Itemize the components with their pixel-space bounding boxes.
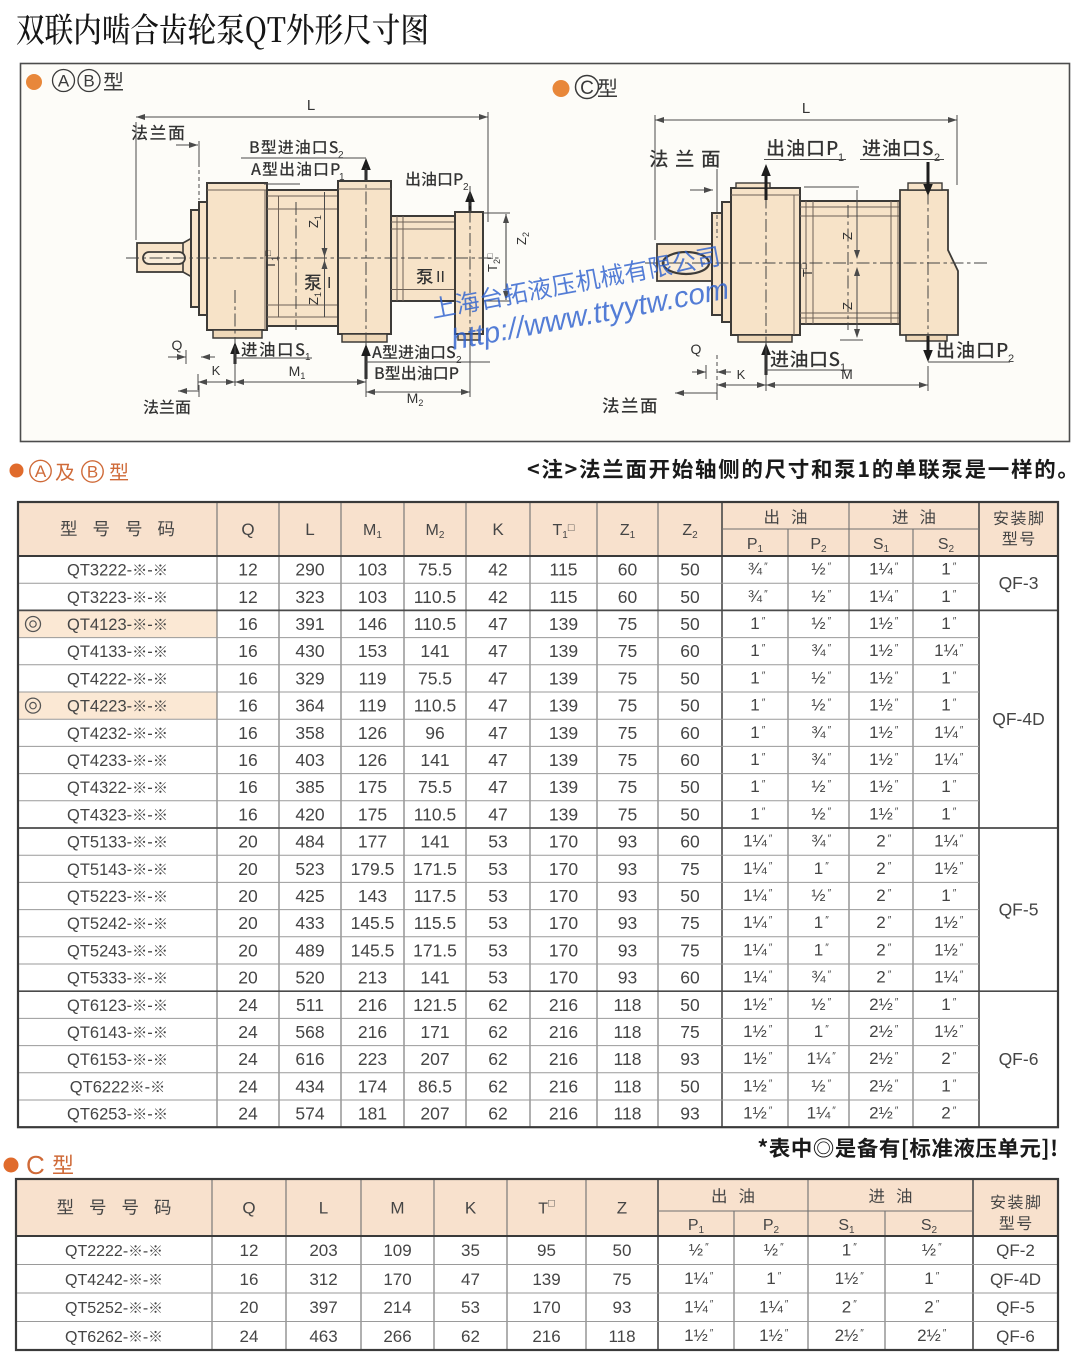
- svg-text:″: ″: [762, 806, 766, 817]
- svg-text:″: ″: [769, 834, 773, 845]
- svg-text:2: 2: [941, 1104, 950, 1123]
- svg-text:-: -: [147, 589, 153, 607]
- svg-text:1: 1: [941, 668, 950, 687]
- svg-text:QT5333-: QT5333-: [67, 970, 132, 988]
- svg-text:425: 425: [295, 886, 324, 906]
- svg-text:115: 115: [550, 560, 578, 580]
- svg-text:216: 216: [549, 1022, 578, 1042]
- svg-text:385: 385: [295, 777, 324, 797]
- svg-text:1¼: 1¼: [934, 641, 958, 660]
- svg-text:1½: 1½: [869, 696, 893, 715]
- svg-text:53: 53: [461, 1298, 480, 1317]
- svg-text:170: 170: [549, 913, 578, 933]
- svg-text:430: 430: [295, 641, 324, 661]
- svg-text:-: -: [147, 1051, 153, 1069]
- svg-text:″: ″: [828, 616, 832, 627]
- svg-text:12: 12: [238, 560, 257, 580]
- svg-text:″: ″: [888, 970, 892, 981]
- svg-text:QT6262-: QT6262-: [65, 1329, 128, 1346]
- svg-text:QF-2: QF-2: [996, 1241, 1035, 1260]
- svg-text:½: ½: [764, 1240, 778, 1259]
- svg-text:1½: 1½: [934, 913, 958, 932]
- svg-text:-: -: [147, 997, 153, 1015]
- svg-text:1: 1: [750, 777, 759, 796]
- svg-text:118: 118: [614, 1049, 642, 1069]
- svg-text:QT2222-: QT2222-: [65, 1243, 128, 1260]
- svg-text:″: ″: [888, 942, 892, 953]
- svg-text:″: ″: [832, 1106, 836, 1117]
- svg-text:″: ″: [953, 1106, 957, 1117]
- svg-text:″: ″: [953, 698, 957, 709]
- svg-text:50: 50: [680, 668, 700, 688]
- svg-text:50: 50: [680, 696, 700, 716]
- svg-text:1: 1: [750, 614, 759, 633]
- svg-text:″: ″: [938, 1242, 942, 1253]
- svg-text:½: ½: [811, 886, 825, 905]
- svg-text:145.5: 145.5: [351, 913, 395, 933]
- svg-text:171: 171: [420, 1022, 449, 1042]
- svg-text:-: -: [147, 834, 153, 852]
- svg-text:A: A: [58, 72, 70, 91]
- svg-text:″: ″: [769, 888, 773, 899]
- svg-text:141: 141: [420, 641, 449, 661]
- svg-text:M: M: [390, 1199, 404, 1218]
- svg-text:2: 2: [463, 182, 469, 193]
- svg-text:24: 24: [238, 1076, 258, 1096]
- svg-text:75: 75: [618, 750, 637, 770]
- svg-text:1½: 1½: [684, 1326, 708, 1345]
- svg-text:16: 16: [238, 750, 257, 770]
- svg-text:″: ″: [895, 779, 899, 790]
- svg-text:2: 2: [842, 1297, 851, 1316]
- svg-text:-: -: [147, 562, 153, 580]
- svg-text:171.5: 171.5: [413, 859, 457, 879]
- svg-text:47: 47: [488, 614, 507, 634]
- svg-text:463: 463: [309, 1327, 337, 1346]
- svg-text:″: ″: [828, 779, 832, 790]
- svg-text:QT5133-: QT5133-: [67, 834, 132, 852]
- svg-text:II: II: [436, 269, 445, 286]
- svg-text:″: ″: [936, 1299, 940, 1310]
- svg-text:-: -: [143, 1243, 148, 1260]
- svg-text:″: ″: [705, 1242, 709, 1253]
- svg-text:QT4242-: QT4242-: [65, 1272, 128, 1289]
- svg-text:M: M: [841, 366, 853, 382]
- svg-text:1½: 1½: [743, 1076, 767, 1095]
- svg-text:75: 75: [680, 940, 699, 960]
- svg-text:″: ″: [785, 1328, 789, 1339]
- svg-text:12: 12: [238, 587, 257, 607]
- svg-text:2: 2: [934, 152, 940, 164]
- svg-text:″: ″: [895, 752, 899, 763]
- svg-text:1½: 1½: [869, 804, 893, 823]
- svg-text:″: ″: [960, 915, 964, 926]
- svg-text:″: ″: [828, 562, 832, 573]
- svg-text:568: 568: [295, 1022, 324, 1042]
- svg-text:391: 391: [295, 614, 324, 634]
- svg-text:216: 216: [549, 1076, 578, 1096]
- svg-text:75: 75: [618, 614, 637, 634]
- svg-text:2: 2: [876, 940, 885, 959]
- svg-text:1¼: 1¼: [743, 832, 767, 851]
- svg-text:2: 2: [876, 913, 885, 932]
- svg-text:16: 16: [238, 777, 257, 797]
- svg-text:1: 1: [842, 1240, 851, 1259]
- svg-text:489: 489: [295, 940, 324, 960]
- svg-text:L: L: [307, 97, 315, 114]
- svg-text:175: 175: [358, 777, 387, 797]
- svg-text:60: 60: [618, 587, 638, 607]
- svg-text:1¼: 1¼: [869, 587, 893, 606]
- svg-text:115: 115: [550, 587, 578, 607]
- svg-text:323: 323: [295, 587, 324, 607]
- svg-text:″: ″: [825, 861, 829, 872]
- svg-text:QT5243-: QT5243-: [67, 942, 132, 960]
- svg-text:″: ″: [762, 698, 766, 709]
- svg-text:16: 16: [240, 1270, 259, 1289]
- svg-text:141: 141: [420, 750, 449, 770]
- svg-text:139: 139: [549, 750, 578, 770]
- svg-text:1¼: 1¼: [743, 913, 767, 932]
- svg-text:-: -: [145, 1078, 151, 1096]
- svg-text:″: ″: [888, 834, 892, 845]
- svg-text:47: 47: [488, 723, 507, 743]
- svg-text:QT5252-: QT5252-: [65, 1300, 128, 1317]
- svg-text:118: 118: [608, 1327, 635, 1346]
- svg-text:207: 207: [420, 1049, 449, 1069]
- svg-text:½: ½: [811, 560, 825, 579]
- svg-text:″: ″: [769, 997, 773, 1008]
- svg-text:″: ″: [832, 1051, 836, 1062]
- svg-text:1: 1: [941, 995, 950, 1014]
- svg-text:93: 93: [618, 859, 637, 879]
- svg-text:53: 53: [488, 940, 507, 960]
- svg-text:″: ″: [853, 1242, 857, 1253]
- svg-text:″: ″: [828, 997, 832, 1008]
- svg-text:QT4323-: QT4323-: [67, 806, 132, 824]
- svg-text:1: 1: [750, 723, 759, 742]
- svg-text:42: 42: [488, 587, 507, 607]
- svg-text:139: 139: [549, 777, 578, 797]
- svg-text:-: -: [147, 1024, 153, 1042]
- svg-text:L: L: [802, 100, 810, 117]
- svg-text:1¼: 1¼: [807, 1104, 831, 1123]
- svg-text:75: 75: [618, 641, 637, 661]
- svg-text:-: -: [143, 1300, 148, 1317]
- svg-text:QT5143-: QT5143-: [67, 861, 132, 879]
- svg-text:″: ″: [828, 806, 832, 817]
- svg-text:60: 60: [680, 641, 700, 661]
- svg-text:½: ½: [811, 1076, 825, 1095]
- svg-text:½: ½: [811, 696, 825, 715]
- svg-text:″: ″: [895, 616, 899, 627]
- svg-text:109: 109: [383, 1241, 411, 1260]
- svg-text:″: ″: [764, 589, 768, 600]
- svg-text:″: ″: [895, 643, 899, 654]
- svg-text:1½: 1½: [743, 995, 767, 1014]
- svg-text:2: 2: [924, 1297, 933, 1316]
- svg-text:2: 2: [338, 150, 344, 161]
- svg-text:″: ″: [953, 1078, 957, 1089]
- svg-text:75: 75: [618, 723, 637, 743]
- svg-text:L: L: [319, 1199, 328, 1218]
- svg-text:16: 16: [238, 641, 257, 661]
- svg-text:″: ″: [895, 1078, 899, 1089]
- svg-text:16: 16: [238, 804, 257, 824]
- svg-text:75.5: 75.5: [418, 560, 452, 580]
- svg-text:Z: Z: [840, 232, 855, 240]
- svg-text:520: 520: [295, 968, 324, 988]
- svg-text:½: ½: [811, 668, 825, 687]
- svg-text:364: 364: [295, 696, 324, 716]
- svg-text:110.5: 110.5: [414, 587, 457, 607]
- svg-text:1¼: 1¼: [743, 859, 767, 878]
- svg-text:24: 24: [240, 1327, 259, 1346]
- svg-text:174: 174: [358, 1076, 387, 1096]
- svg-text:60: 60: [680, 750, 700, 770]
- svg-text:QT4233-: QT4233-: [67, 752, 132, 770]
- svg-text:½: ½: [811, 614, 825, 633]
- svg-text:1: 1: [814, 859, 823, 878]
- svg-text:-: -: [147, 915, 153, 933]
- svg-text:2½: 2½: [869, 1104, 893, 1123]
- svg-text:574: 574: [295, 1104, 324, 1124]
- svg-text:″: ″: [936, 1271, 940, 1282]
- svg-text:-: -: [147, 861, 153, 879]
- svg-text:203: 203: [309, 1241, 337, 1260]
- svg-text:″: ″: [888, 861, 892, 872]
- svg-text:¾: ¾: [811, 968, 826, 987]
- svg-text:47: 47: [488, 750, 507, 770]
- svg-text:12: 12: [240, 1241, 259, 1260]
- svg-text:″: ″: [953, 888, 957, 899]
- svg-text:″: ″: [953, 589, 957, 600]
- svg-text:93: 93: [618, 832, 637, 852]
- svg-text:-: -: [147, 888, 153, 906]
- svg-text:16: 16: [238, 696, 257, 716]
- svg-text:2: 2: [941, 1049, 950, 1068]
- svg-text:24: 24: [238, 1022, 258, 1042]
- svg-text:62: 62: [488, 1022, 507, 1042]
- svg-text:″: ″: [895, 562, 899, 573]
- svg-text:523: 523: [295, 859, 324, 879]
- svg-text:QT6253-: QT6253-: [67, 1106, 132, 1124]
- svg-text:397: 397: [309, 1298, 337, 1317]
- svg-text:I: I: [327, 275, 331, 292]
- svg-text:1¼: 1¼: [807, 1049, 831, 1068]
- svg-text:42: 42: [488, 560, 507, 580]
- svg-text:L: L: [305, 520, 314, 539]
- svg-text:93: 93: [613, 1298, 632, 1317]
- svg-text:1½: 1½: [869, 777, 893, 796]
- svg-text:118: 118: [614, 1022, 642, 1042]
- svg-text:¾: ¾: [811, 723, 826, 742]
- svg-text:″: ″: [895, 589, 899, 600]
- svg-text:″: ″: [762, 670, 766, 681]
- svg-text:1½: 1½: [743, 1049, 767, 1068]
- svg-text:2: 2: [456, 355, 462, 366]
- svg-text:″: ″: [785, 1299, 789, 1310]
- svg-text:86.5: 86.5: [418, 1076, 452, 1096]
- svg-text:QT5242-: QT5242-: [67, 915, 132, 933]
- svg-text:″: ″: [769, 861, 773, 872]
- svg-text:170: 170: [549, 832, 578, 852]
- svg-text:47: 47: [488, 804, 507, 824]
- svg-text:20: 20: [238, 832, 258, 852]
- svg-text:1¼: 1¼: [743, 886, 767, 905]
- svg-text:146: 146: [358, 614, 387, 634]
- svg-text:″: ″: [895, 725, 899, 736]
- svg-text:″: ″: [710, 1271, 714, 1282]
- svg-text:312: 312: [309, 1270, 337, 1289]
- svg-text:214: 214: [383, 1298, 411, 1317]
- svg-text:75: 75: [618, 777, 637, 797]
- svg-text:C: C: [26, 1150, 45, 1180]
- svg-text:″: ″: [960, 752, 964, 763]
- svg-text:53: 53: [488, 913, 507, 933]
- svg-text:QT6143-: QT6143-: [67, 1024, 132, 1042]
- svg-text:″: ″: [769, 942, 773, 953]
- svg-text:1¼: 1¼: [684, 1297, 708, 1316]
- svg-text:C: C: [580, 78, 594, 99]
- svg-text:1½: 1½: [835, 1269, 859, 1288]
- svg-text:126: 126: [358, 723, 387, 743]
- svg-text:″: ″: [960, 1024, 964, 1035]
- svg-text:93: 93: [618, 940, 637, 960]
- svg-text:1½: 1½: [869, 668, 893, 687]
- svg-text:50: 50: [680, 560, 700, 580]
- svg-text:A: A: [35, 462, 47, 481]
- svg-text:115.5: 115.5: [414, 913, 457, 933]
- svg-text:170: 170: [549, 886, 578, 906]
- svg-text:433: 433: [295, 913, 324, 933]
- svg-text:50: 50: [613, 1241, 632, 1260]
- svg-text:2½: 2½: [869, 995, 893, 1014]
- svg-text:170: 170: [383, 1270, 411, 1289]
- svg-text:1: 1: [814, 940, 823, 959]
- svg-text:″: ″: [960, 942, 964, 953]
- svg-text:62: 62: [488, 1049, 507, 1069]
- svg-text:47: 47: [461, 1270, 480, 1289]
- svg-text:″: ″: [769, 915, 773, 926]
- svg-text:62: 62: [488, 995, 507, 1015]
- svg-text:16: 16: [238, 614, 257, 634]
- svg-text:″: ″: [762, 752, 766, 763]
- svg-text:QT6222: QT6222: [70, 1078, 130, 1096]
- svg-text:20: 20: [238, 968, 258, 988]
- svg-text:1: 1: [941, 777, 950, 796]
- svg-text:2½: 2½: [869, 1049, 893, 1068]
- svg-text:110.5: 110.5: [414, 614, 457, 634]
- svg-text:1: 1: [924, 1269, 933, 1288]
- svg-text:Q: Q: [691, 341, 702, 357]
- svg-text:QF-4D: QF-4D: [990, 1270, 1041, 1289]
- svg-text:1: 1: [941, 614, 950, 633]
- svg-text:216: 216: [358, 995, 387, 1015]
- svg-text:″: ″: [710, 1299, 714, 1310]
- svg-text:110.5: 110.5: [414, 696, 457, 716]
- svg-text:″: ″: [828, 698, 832, 709]
- svg-text:50: 50: [680, 777, 700, 797]
- svg-text:K: K: [492, 520, 504, 539]
- svg-text:1½: 1½: [869, 723, 893, 742]
- svg-text:60: 60: [680, 723, 700, 743]
- svg-text:20: 20: [238, 886, 258, 906]
- svg-text:60: 60: [618, 560, 638, 580]
- svg-text:″: ″: [828, 888, 832, 899]
- svg-text:″: ″: [828, 725, 832, 736]
- svg-text:½: ½: [811, 587, 825, 606]
- svg-text:50: 50: [680, 614, 700, 634]
- svg-text:1: 1: [750, 641, 759, 660]
- svg-text:53: 53: [488, 968, 507, 988]
- svg-text:53: 53: [488, 886, 507, 906]
- svg-text:118: 118: [614, 1076, 642, 1096]
- svg-text:484: 484: [295, 832, 324, 852]
- svg-text:223: 223: [358, 1049, 387, 1069]
- svg-text:24: 24: [238, 1049, 258, 1069]
- svg-text:403: 403: [295, 750, 324, 770]
- svg-text:53: 53: [488, 859, 507, 879]
- svg-text:358: 358: [295, 723, 324, 743]
- svg-text:¾: ¾: [811, 750, 826, 769]
- svg-text:47: 47: [488, 777, 507, 797]
- svg-text:2½: 2½: [835, 1326, 859, 1345]
- svg-text:1: 1: [814, 1022, 823, 1041]
- svg-text:½: ½: [811, 804, 825, 823]
- svg-text:″: ″: [960, 861, 964, 872]
- svg-text:″: ″: [825, 942, 829, 953]
- svg-text:1¼: 1¼: [743, 968, 767, 987]
- svg-text:QT4133-: QT4133-: [67, 643, 132, 661]
- svg-text:93: 93: [680, 1049, 699, 1069]
- svg-text:1¼: 1¼: [684, 1269, 708, 1288]
- svg-text:″: ″: [960, 725, 964, 736]
- svg-text:¾: ¾: [748, 560, 763, 579]
- svg-text:24: 24: [238, 1104, 258, 1124]
- svg-text:″: ″: [762, 616, 766, 627]
- svg-text:16: 16: [238, 723, 257, 743]
- svg-text:62: 62: [488, 1076, 507, 1096]
- svg-text:20: 20: [238, 940, 258, 960]
- svg-text:″: ″: [769, 1051, 773, 1062]
- svg-text:K: K: [737, 367, 746, 382]
- svg-text:1: 1: [941, 1076, 950, 1095]
- svg-text:QF-5: QF-5: [996, 1298, 1035, 1317]
- svg-text:″: ″: [778, 1271, 782, 1282]
- svg-text:″: ″: [953, 997, 957, 1008]
- svg-text:103: 103: [358, 560, 387, 580]
- svg-text:-: -: [147, 1106, 153, 1124]
- svg-text:75.5: 75.5: [418, 777, 452, 797]
- svg-text:1: 1: [838, 152, 844, 164]
- svg-text:75: 75: [680, 859, 699, 879]
- svg-text:″: ″: [895, 1024, 899, 1035]
- svg-text:139: 139: [549, 614, 578, 634]
- svg-text:75: 75: [618, 668, 637, 688]
- svg-text:QT4222-: QT4222-: [67, 670, 132, 688]
- svg-text:″: ″: [960, 834, 964, 845]
- svg-text:266: 266: [383, 1327, 411, 1346]
- svg-text:95: 95: [537, 1241, 556, 1260]
- svg-text:329: 329: [295, 668, 324, 688]
- svg-text:QT3222-: QT3222-: [67, 562, 132, 580]
- svg-text:20: 20: [238, 859, 258, 879]
- svg-text:1¼: 1¼: [869, 560, 893, 579]
- svg-text:139: 139: [549, 723, 578, 743]
- svg-text:Z: Z: [617, 1199, 627, 1218]
- svg-text:B: B: [83, 72, 94, 91]
